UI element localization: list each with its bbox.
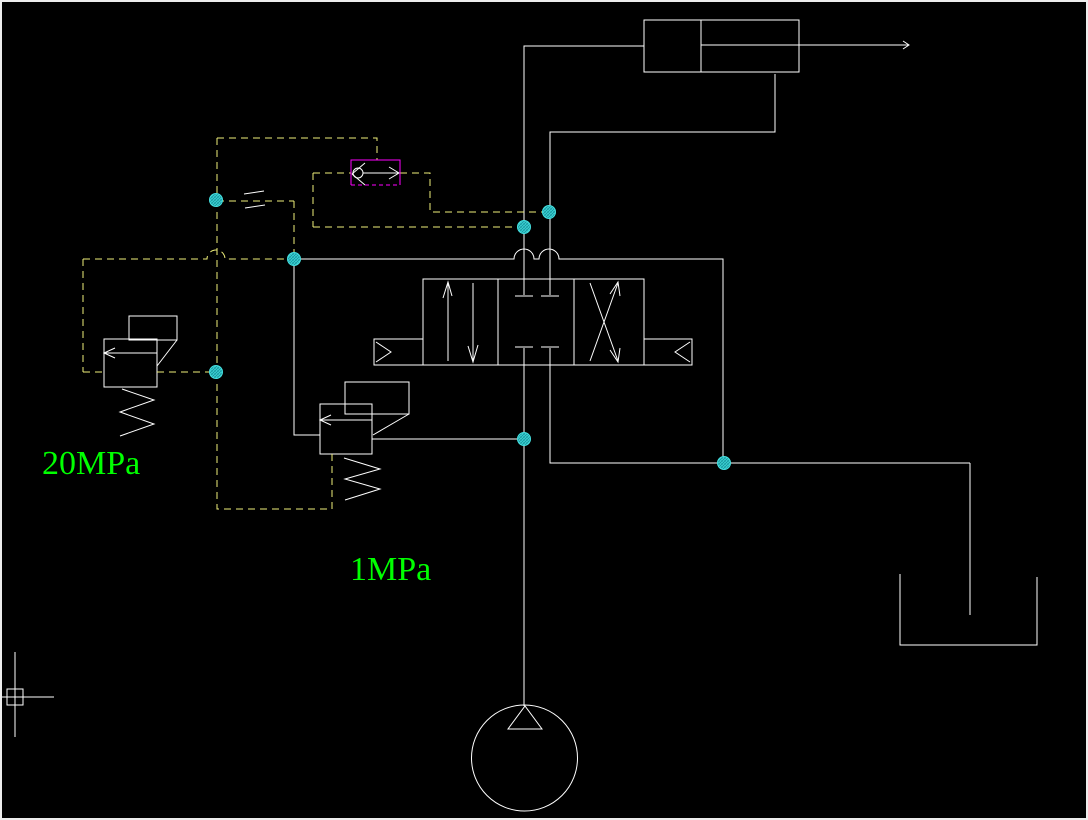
cross-arrow-1-head: [610, 282, 620, 296]
relief-return-line[interactable]: [294, 249, 723, 463]
pump-flow-triangle: [508, 706, 542, 729]
throttle-orifice[interactable]: [244, 191, 265, 208]
crosshair-cursor: [2, 652, 54, 737]
cad-viewport[interactable]: 20MPa 1MPa: [0, 0, 1088, 820]
spring: [344, 458, 380, 500]
tank-symbol[interactable]: [900, 574, 1037, 645]
solenoid-left[interactable]: [374, 339, 423, 365]
work-line-b[interactable]: [550, 74, 775, 279]
work-line-a[interactable]: [524, 46, 644, 279]
tank-header-line[interactable]: [550, 365, 970, 463]
label-20mpa[interactable]: 20MPa: [42, 445, 140, 482]
cylinder-body[interactable]: [644, 20, 799, 72]
solenoid-right-chevron: [675, 342, 690, 362]
pilot-check-valve[interactable]: [352, 163, 399, 185]
grip-node[interactable]: [718, 457, 731, 470]
pilot-stage-box[interactable]: [129, 316, 177, 340]
pilot-stage-box[interactable]: [345, 382, 409, 414]
grip-node[interactable]: [518, 221, 531, 234]
pilot-tap-line-b[interactable]: [400, 173, 549, 212]
hydraulic-pump[interactable]: [472, 365, 578, 811]
grip-node[interactable]: [518, 433, 531, 446]
pilot-lines[interactable]: [83, 138, 549, 509]
connection-grips[interactable]: [210, 194, 731, 470]
relief-valve-20mpa[interactable]: [104, 316, 177, 436]
valve-body[interactable]: [104, 339, 157, 387]
solenoid-left-chevron: [376, 342, 391, 362]
pump-circle[interactable]: [472, 705, 578, 811]
label-1mpa[interactable]: 1MPa: [350, 551, 431, 588]
check-seat-lower: [352, 174, 365, 185]
solid-circuit-lines: [104, 20, 1037, 811]
pilot-to-check-top[interactable]: [217, 138, 377, 160]
drawing-canvas[interactable]: 20MPa 1MPa: [2, 2, 1086, 818]
hydraulic-cylinder[interactable]: [644, 20, 909, 72]
grip-node[interactable]: [288, 253, 301, 266]
relief-1mpa-inlet-line[interactable]: [294, 259, 320, 435]
solenoid-right[interactable]: [644, 339, 692, 365]
spring: [120, 389, 154, 436]
valve-body[interactable]: [320, 404, 372, 454]
cross-arrow-2-head: [610, 348, 620, 362]
grip-node[interactable]: [210, 366, 223, 379]
grip-node[interactable]: [210, 194, 223, 207]
pilot-drain-to-1mpa[interactable]: [217, 372, 332, 509]
relief-valve-1mpa[interactable]: [320, 382, 524, 500]
pilot-stage-link: [157, 340, 177, 366]
tank[interactable]: [550, 365, 1037, 645]
grip-node[interactable]: [543, 206, 556, 219]
pilot-left-loop-top[interactable]: [83, 250, 294, 259]
pilot-stage-link: [373, 414, 409, 435]
directional-valve-4-3[interactable]: [374, 279, 692, 365]
